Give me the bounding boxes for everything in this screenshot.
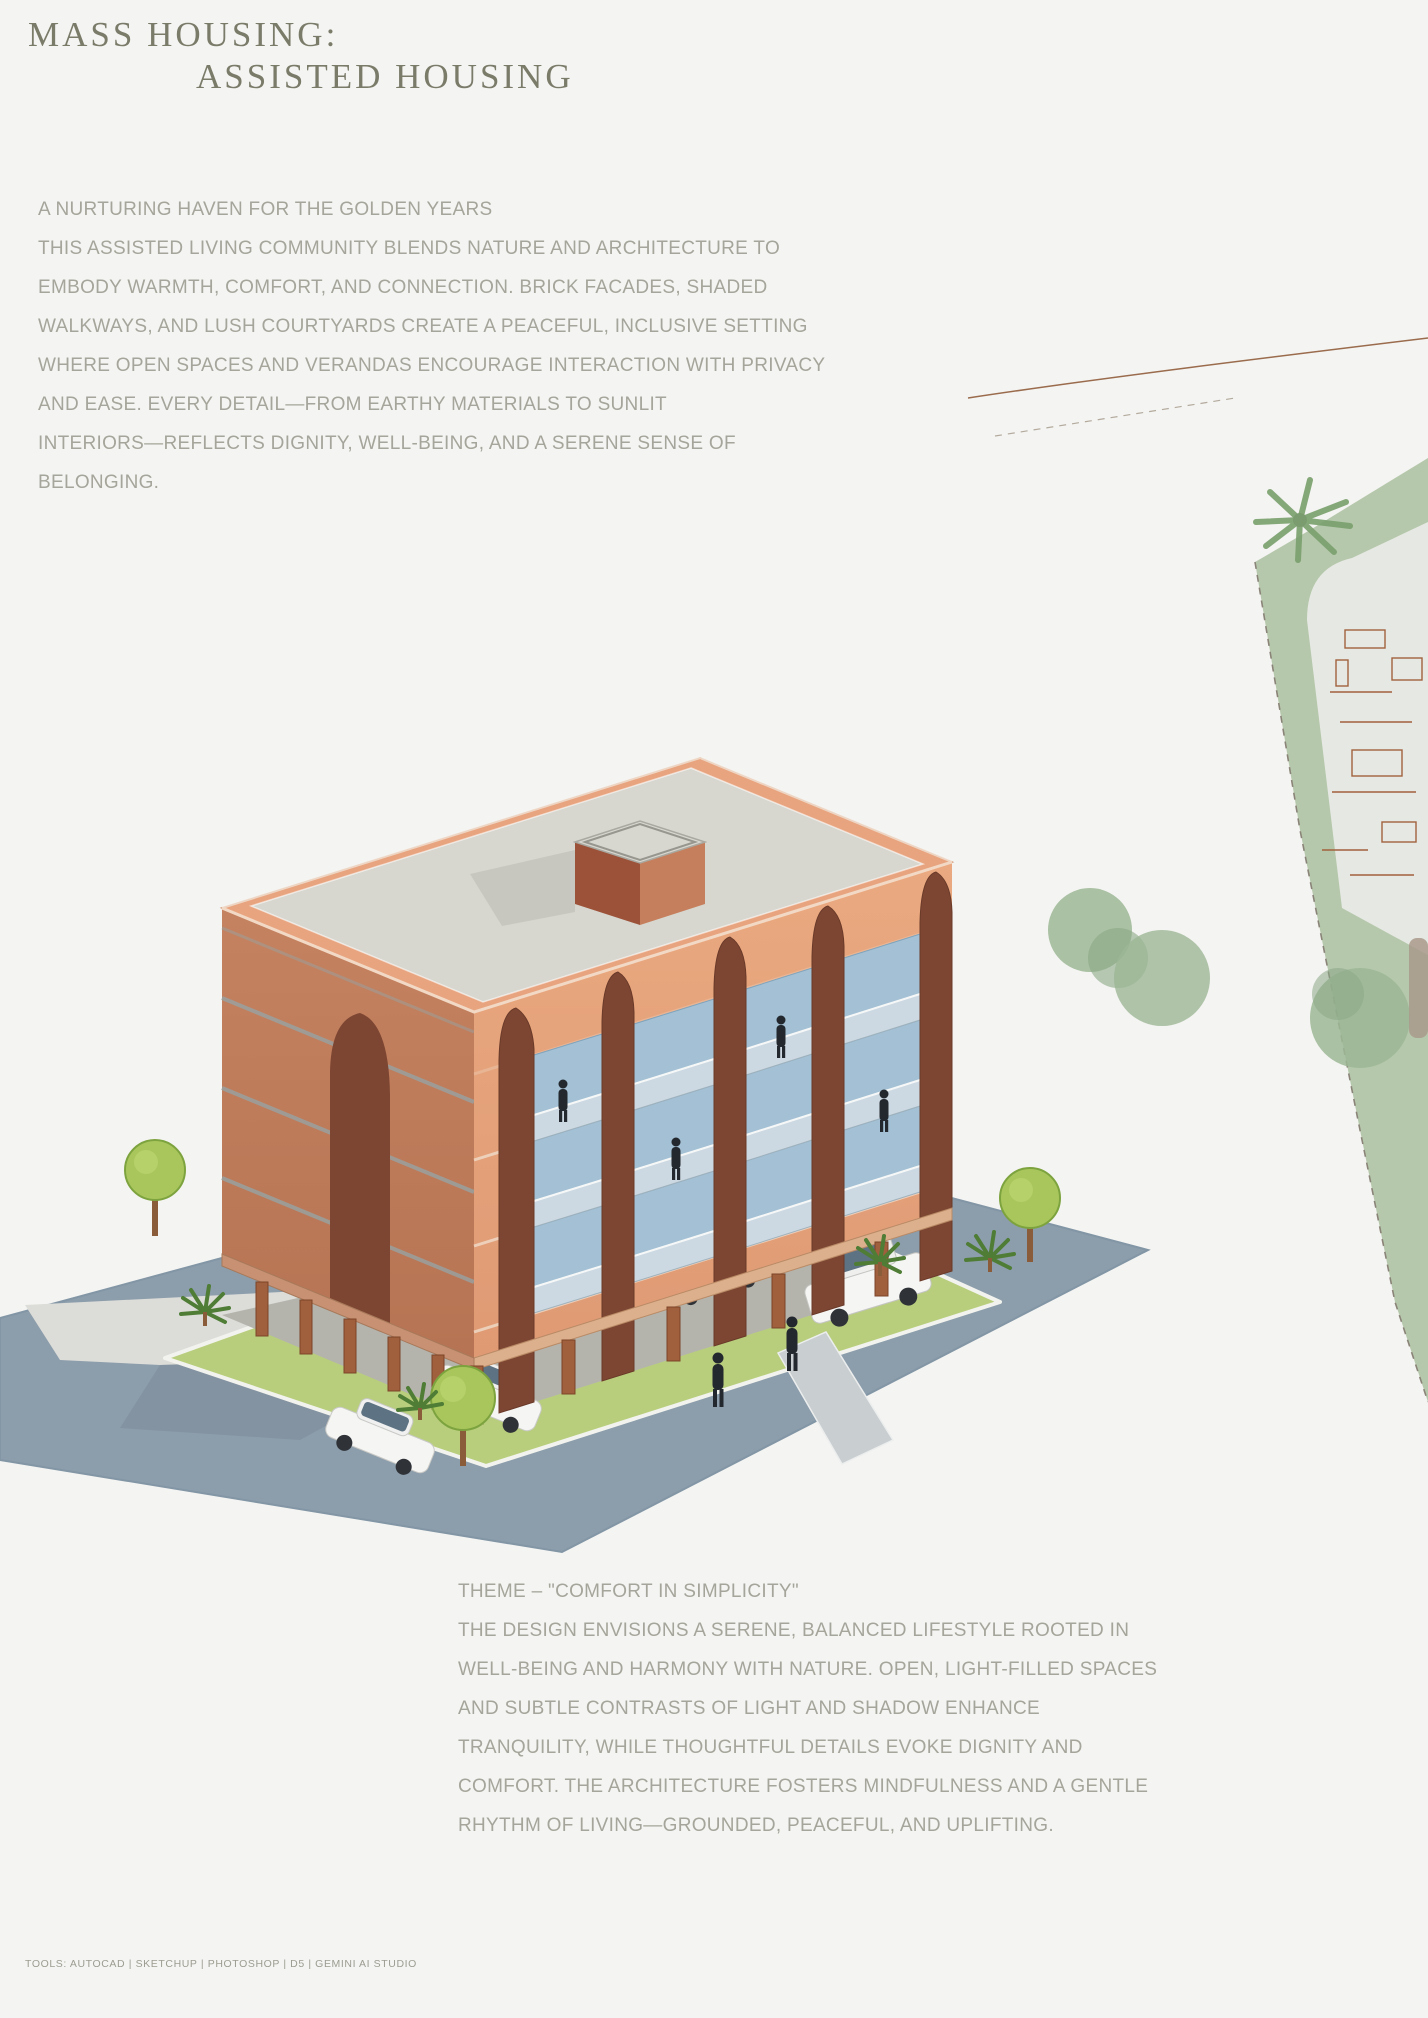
column	[772, 1274, 785, 1328]
text-line: TRANQUILITY, WHILE THOUGHTFUL DETAILS EV…	[458, 1728, 1157, 1767]
theme-paragraph: THEME – "COMFORT IN SIMPLICITY"THE DESIG…	[458, 1572, 1157, 1845]
text-line: COMFORT. THE ARCHITECTURE FOSTERS MINDFU…	[458, 1767, 1157, 1806]
column	[388, 1337, 400, 1391]
column	[562, 1340, 575, 1394]
side-arch-panel	[330, 1013, 390, 1323]
text-line: WALKWAYS, AND LUSH COURTYARDS CREATE A P…	[38, 307, 825, 346]
column	[667, 1307, 680, 1361]
text-line: WELL-BEING AND HARMONY WITH NATURE. OPEN…	[458, 1650, 1157, 1689]
plan-road-edge-line	[968, 338, 1428, 398]
column	[344, 1319, 356, 1373]
text-line: THIS ASSISTED LIVING COMMUNITY BLENDS NA…	[38, 229, 825, 268]
building-illustration-svg	[0, 560, 1428, 1620]
intro-paragraph: A NURTURING HAVEN FOR THE GOLDEN YEARSTH…	[38, 190, 825, 502]
text-line: WHERE OPEN SPACES AND VERANDAS ENCOURAGE…	[38, 346, 825, 385]
text-line: THE DESIGN ENVISIONS A SERENE, BALANCED …	[458, 1611, 1157, 1650]
text-line: AND SUBTLE CONTRASTS OF LIGHT AND SHADOW…	[458, 1689, 1157, 1728]
tools-text: TOOLS: AUTOCAD | SKETCHUP | PHOTOSHOP | …	[25, 1958, 417, 1970]
text-line: THEME – "COMFORT IN SIMPLICITY"	[458, 1572, 1157, 1611]
text-line: A NURTURING HAVEN FOR THE GOLDEN YEARS	[38, 190, 825, 229]
text-line: AND EASE. EVERY DETAIL—FROM EARTHY MATER…	[38, 385, 825, 424]
title-line-1: MASS HOUSING:	[28, 15, 338, 54]
text-line: INTERIORS—REFLECTS DIGNITY, WELL-BEING, …	[38, 424, 825, 463]
column	[256, 1282, 268, 1336]
page-title: MASS HOUSING:ASSISTED HOUSING	[28, 14, 574, 98]
tools-footer: TOOLS: AUTOCAD | SKETCHUP | PHOTOSHOP | …	[25, 1958, 417, 1970]
building-illustration	[0, 560, 1428, 1620]
text-line: BELONGING.	[38, 463, 825, 502]
text-line: RHYTHM OF LIVING—GROUNDED, PEACEFUL, AND…	[458, 1806, 1157, 1845]
column	[300, 1300, 312, 1354]
title-line-2: ASSISTED HOUSING	[196, 56, 574, 98]
text-line: EMBODY WARMTH, COMFORT, AND CONNECTION. …	[38, 268, 825, 307]
tree-icon	[125, 1140, 185, 1236]
plan-setback-line	[995, 398, 1235, 436]
